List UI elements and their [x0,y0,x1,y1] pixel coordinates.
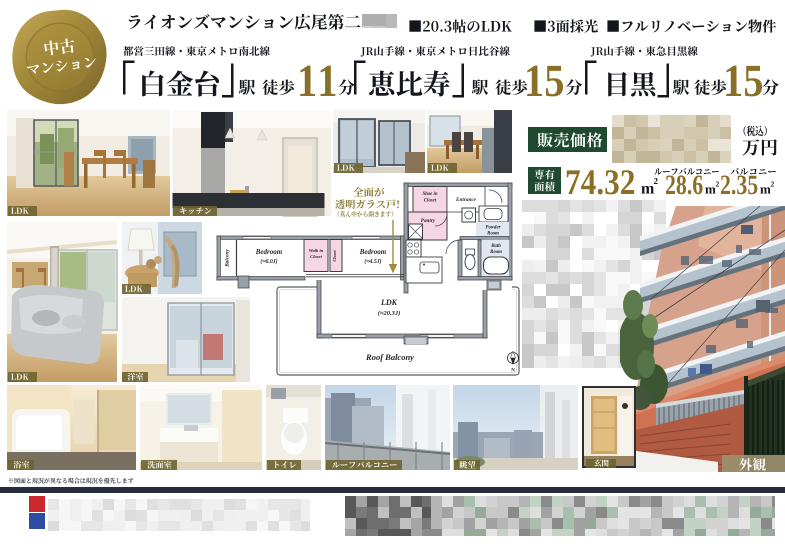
svg-text:Powder: Powder [486,226,501,231]
svg-text:Bath: Bath [490,244,501,249]
svg-text:Roof Balcony: Roof Balcony [365,352,414,362]
svg-text:Room: Room [490,250,502,255]
svg-text:Closet: Closet [332,250,337,262]
svg-text:Closet: Closet [310,254,322,259]
svg-text:(≈6.0J): (≈6.0J) [260,258,277,265]
svg-text:Room: Room [487,232,499,237]
svg-text:LDK: LDK [380,298,398,307]
svg-text:Shoe in: Shoe in [422,192,437,197]
svg-text:Balcony: Balcony [225,249,231,268]
svg-text:Entrance: Entrance [455,197,477,203]
svg-text:Closet: Closet [424,199,437,204]
svg-text:Bedroom: Bedroom [359,248,387,256]
svg-text:Bedroom: Bedroom [255,248,283,256]
svg-text:(≈4.5J): (≈4.5J) [364,258,381,265]
svg-text:N: N [511,369,515,374]
svg-text:(≈20.3J): (≈20.3J) [378,310,401,317]
svg-text:Walk in: Walk in [309,248,324,253]
svg-text:Pantry: Pantry [421,218,436,224]
